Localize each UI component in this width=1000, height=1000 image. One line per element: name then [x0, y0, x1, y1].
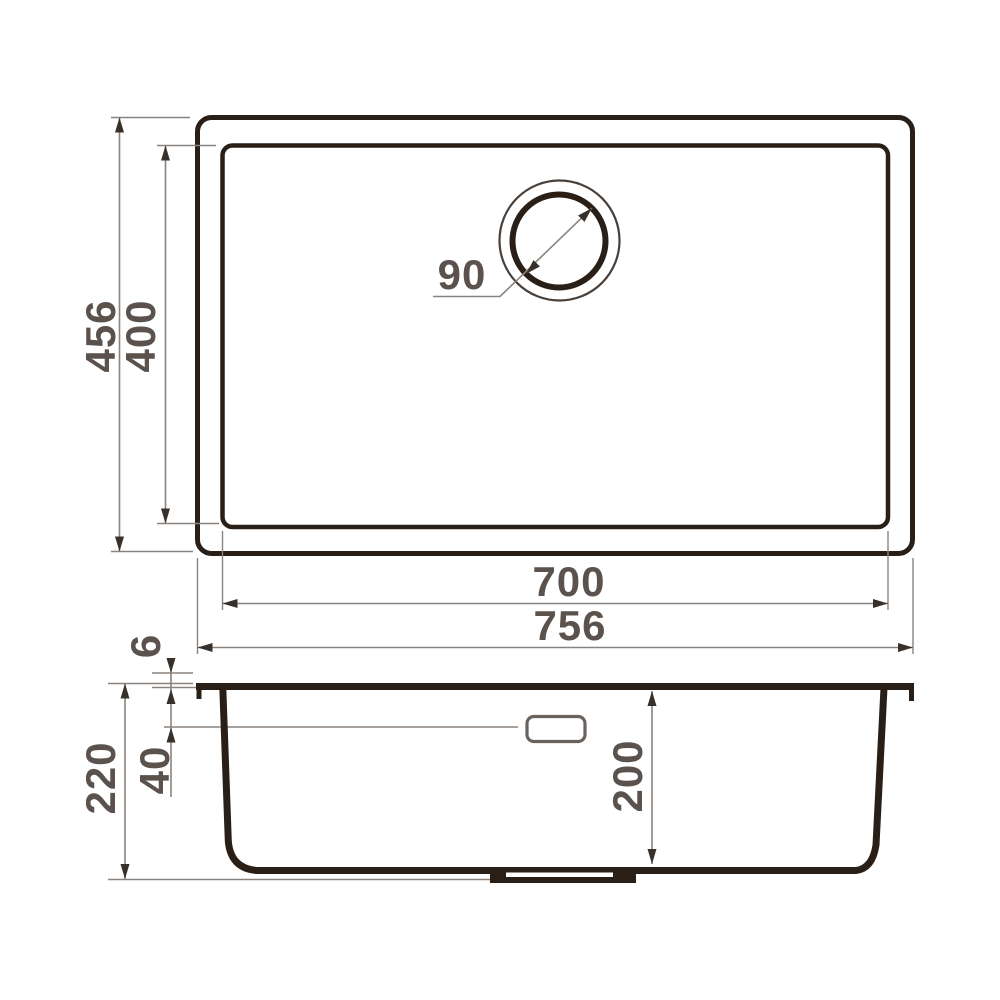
arrowhead	[648, 691, 657, 706]
drain-hole	[500, 181, 620, 301]
dim-label-rim-thickness: 6	[122, 634, 169, 658]
section-view: 220 6 40 200	[77, 634, 914, 883]
arrowhead	[167, 728, 176, 743]
dim-label-overall-width: 756	[533, 602, 606, 649]
sink-dimension-drawing: 90 456 400	[0, 0, 1000, 1000]
arrowhead	[898, 643, 913, 652]
dim-bowl-depth: 400	[117, 146, 219, 524]
arrowhead	[121, 864, 130, 879]
arrowhead	[115, 118, 124, 133]
dim-label-bowl-width: 700	[532, 558, 605, 605]
arrowhead	[198, 643, 213, 652]
arrowhead	[161, 509, 170, 524]
sink-dimension-drawing-page: 90 456 400	[0, 0, 1000, 1000]
dim-label-overall-height: 220	[77, 741, 124, 814]
dim-overflow-drop: 40	[131, 728, 178, 795]
dim-label-overflow-drop: 40	[131, 746, 178, 795]
arrowhead	[873, 599, 888, 608]
drain-outer-circle	[500, 181, 620, 301]
arrowhead	[167, 658, 176, 673]
dim-overall-height: 220	[77, 684, 130, 880]
dim-bowl-width: 700	[223, 531, 889, 610]
sink-outer-rim-outline	[198, 118, 913, 554]
arrowhead	[526, 260, 540, 274]
dim-label-bowl-depth: 400	[117, 299, 164, 372]
drain-flange-slot	[506, 873, 613, 878]
top-view: 90 456 400	[77, 118, 913, 655]
arrowhead	[161, 146, 170, 161]
dim-label-drain-diameter: 90	[438, 251, 487, 298]
arrowhead	[115, 537, 124, 552]
arrowhead	[167, 689, 176, 704]
arrowhead	[121, 684, 130, 699]
dim-label-bowl-inner-depth: 200	[604, 739, 651, 812]
dim-bowl-inner-depth: 200	[604, 691, 657, 864]
sink-bowl-outline	[223, 146, 889, 528]
arrowhead	[648, 849, 657, 864]
overflow-opening	[527, 717, 585, 742]
arrowhead	[223, 599, 238, 608]
